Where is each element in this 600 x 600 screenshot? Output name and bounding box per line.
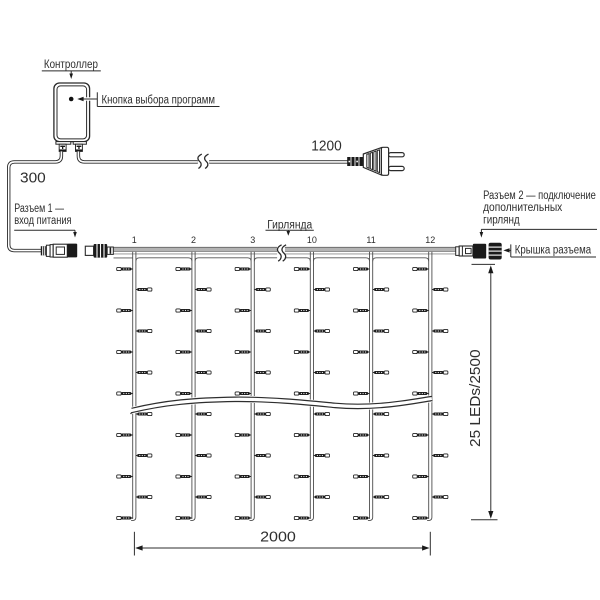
svg-text:Контроллер: Контроллер	[44, 59, 98, 71]
svg-text:Разъем 2 — подключение: Разъем 2 — подключение	[483, 190, 596, 202]
svg-text:25 LEDs/2500: 25 LEDs/2500	[468, 349, 484, 447]
svg-text:1200: 1200	[311, 139, 341, 155]
svg-text:2: 2	[191, 235, 196, 245]
svg-text:Кнопка выбора программ: Кнопка выбора программ	[102, 94, 216, 106]
svg-text:Разъем 1 —: Разъем 1 —	[14, 203, 64, 215]
svg-text:гирлянд: гирлянд	[483, 214, 520, 226]
svg-text:дополнительных: дополнительных	[483, 202, 562, 214]
svg-text:10: 10	[307, 235, 317, 245]
svg-text:12: 12	[425, 235, 435, 245]
svg-text:Гирлянда: Гирлянда	[267, 219, 313, 231]
svg-text:2000: 2000	[260, 529, 296, 545]
svg-text:1: 1	[132, 235, 137, 245]
svg-text:вход питания: вход питания	[14, 215, 71, 227]
svg-text:Крышка разъема: Крышка разъема	[515, 245, 592, 257]
svg-text:11: 11	[366, 235, 375, 245]
svg-text:3: 3	[250, 235, 255, 245]
svg-text:300: 300	[20, 171, 46, 187]
